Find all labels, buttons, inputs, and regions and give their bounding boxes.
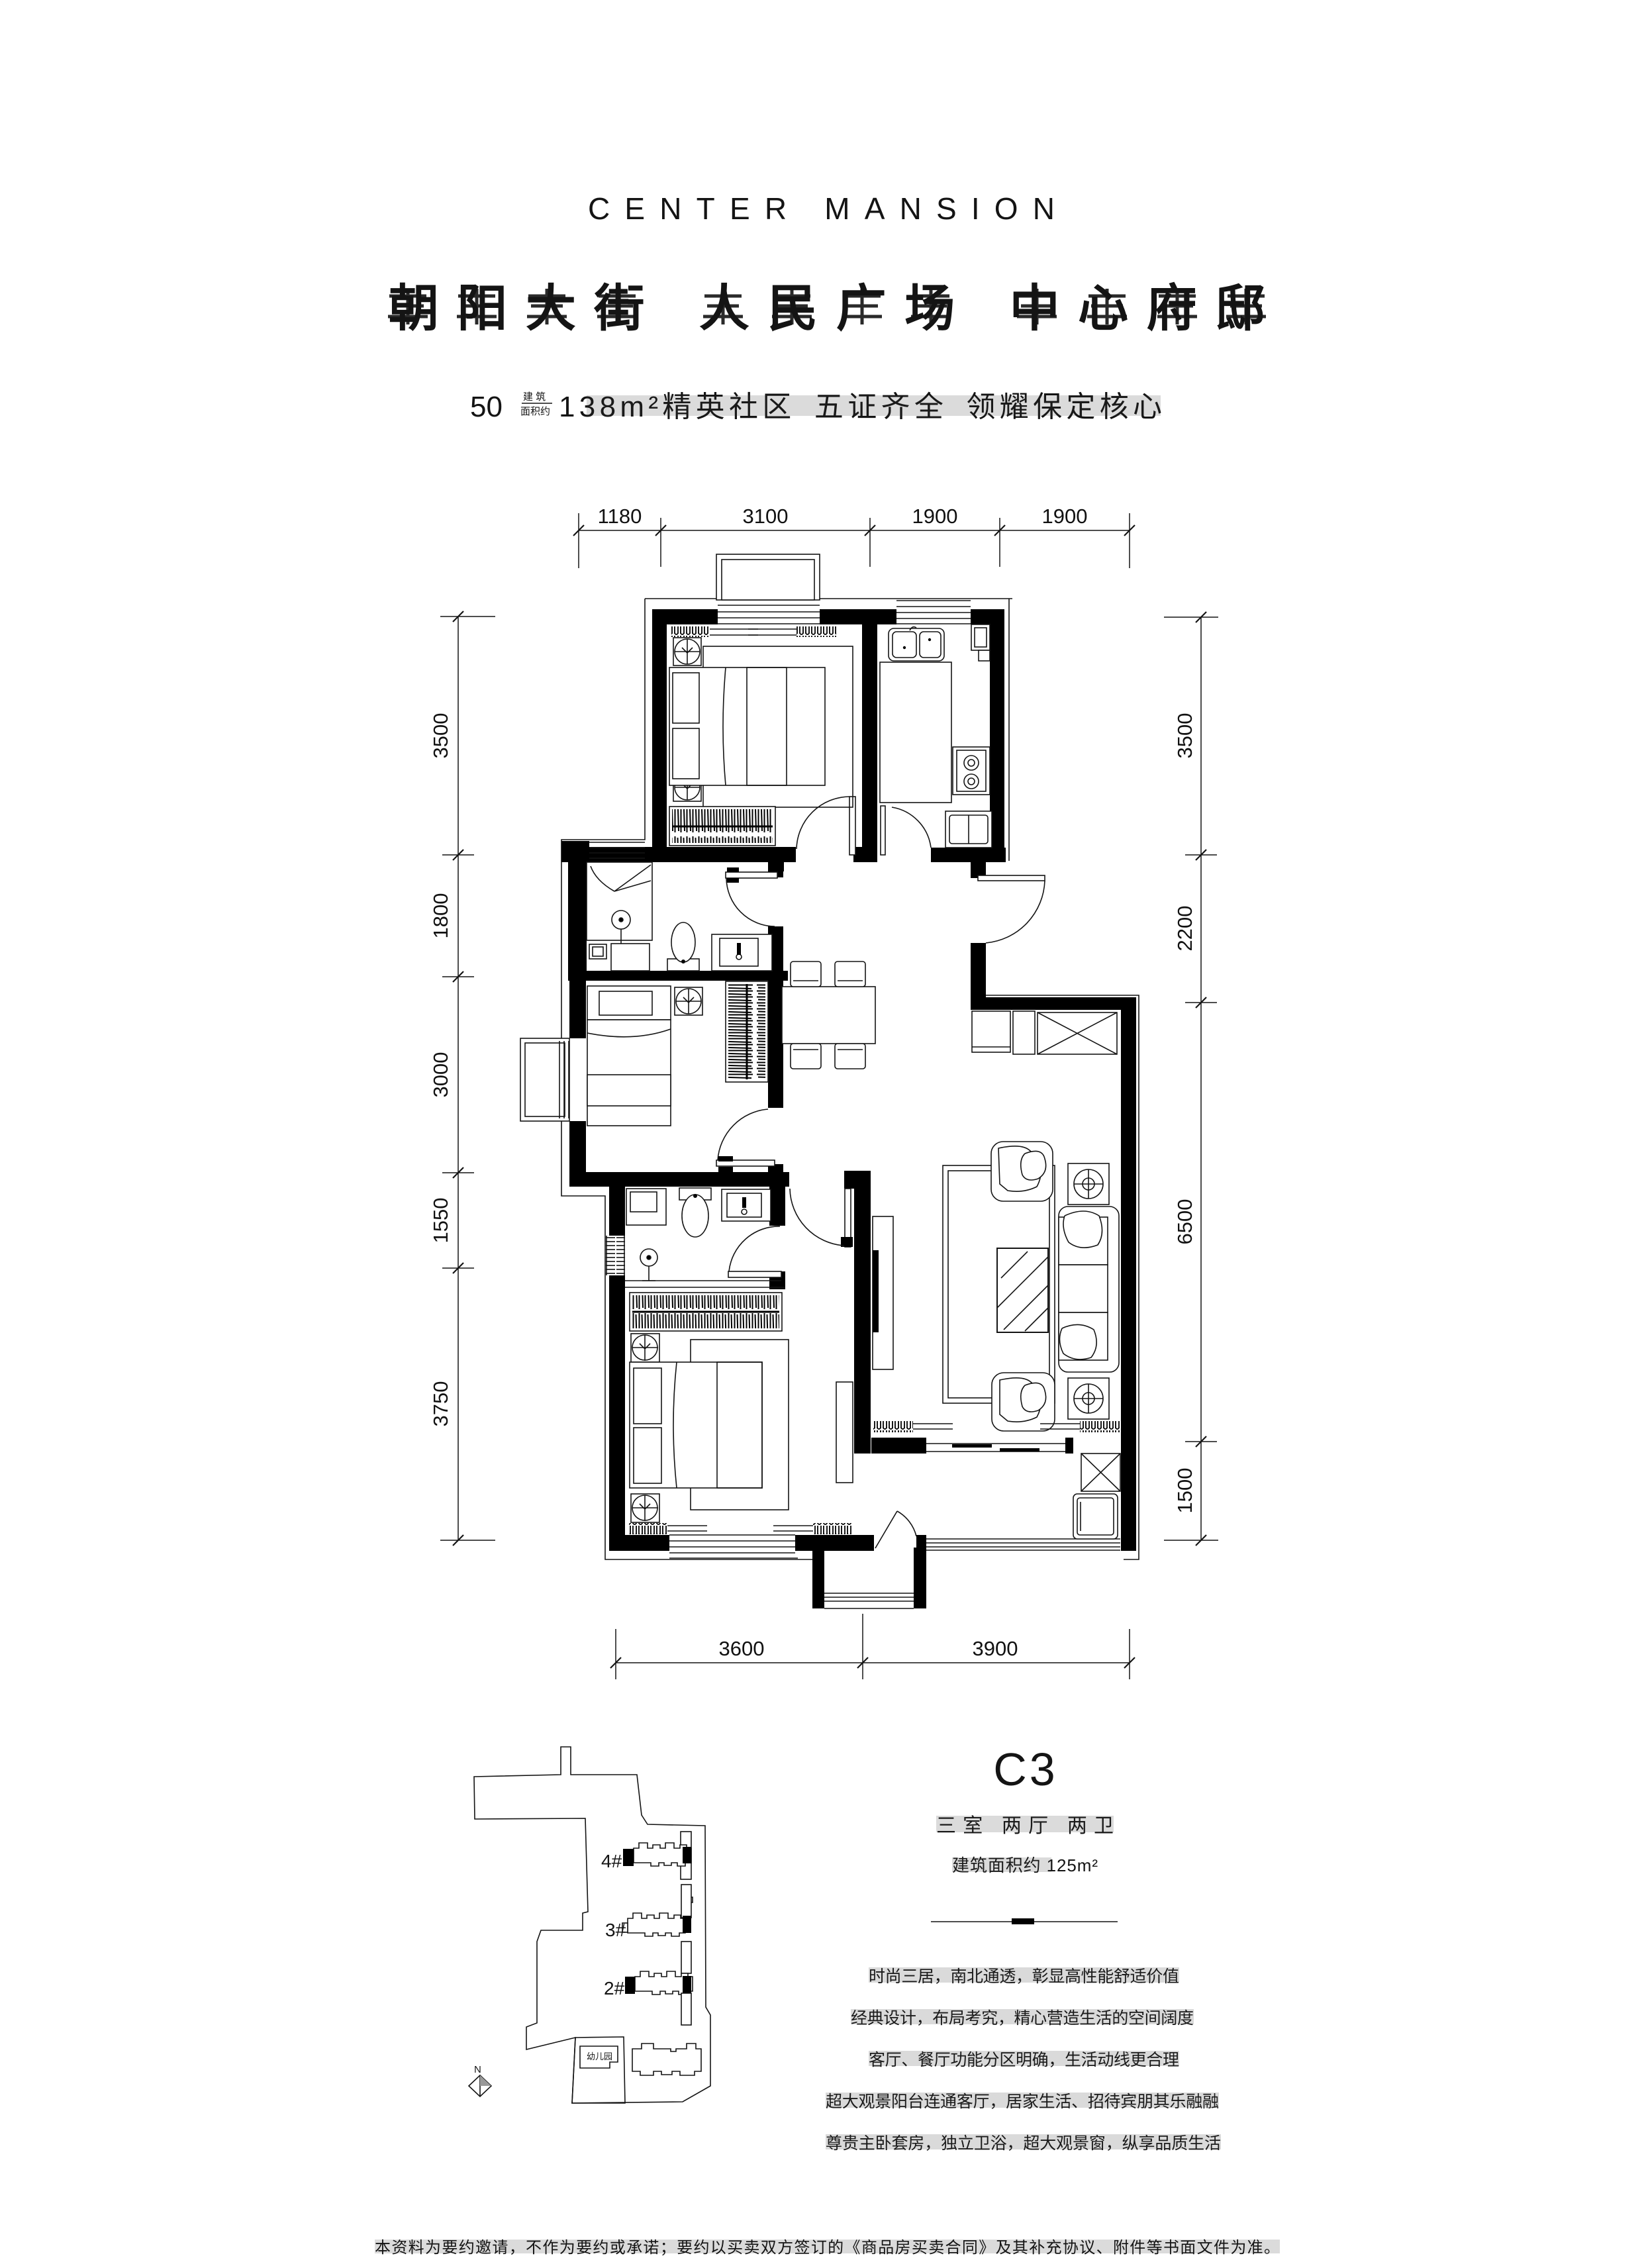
svg-text:3600: 3600: [719, 1637, 765, 1660]
svg-text:N: N: [474, 2064, 481, 2075]
svg-text:本资料为要约邀请，不作为要约或承诺；要约以买卖双方签订的《商: 本资料为要约邀请，不作为要约或承诺；要约以买卖双方签订的《商品房买卖合同》及其补…: [375, 2239, 1280, 2257]
svg-text:1900: 1900: [1042, 505, 1088, 528]
svg-text:C3: C3: [993, 1744, 1057, 1795]
svg-text:3500: 3500: [429, 713, 452, 759]
svg-text:1180: 1180: [598, 505, 642, 528]
svg-text:4#: 4#: [601, 1851, 622, 1871]
svg-text:3900: 3900: [973, 1637, 1018, 1660]
svg-text:3750: 3750: [429, 1381, 452, 1427]
svg-text:3100: 3100: [743, 505, 789, 528]
svg-text:6500: 6500: [1173, 1199, 1196, 1245]
svg-text:3#: 3#: [605, 1920, 626, 1940]
svg-text:面积约: 面积约: [520, 406, 550, 417]
svg-text:建 筑: 建 筑: [523, 391, 546, 403]
svg-text:50: 50: [470, 391, 503, 423]
svg-text:3000: 3000: [429, 1052, 452, 1098]
svg-text:1900: 1900: [912, 505, 958, 528]
svg-text:朝 阳 大 街 人 民 广 场 中 心 府 邸: 朝 阳 大 街 人 民 广 场 中 心 府 邸: [389, 281, 1265, 337]
svg-text:1500: 1500: [1173, 1468, 1196, 1514]
svg-text:1550: 1550: [429, 1198, 452, 1244]
svg-text:2#: 2#: [604, 1978, 625, 1998]
svg-text:1800: 1800: [429, 893, 452, 939]
svg-text:2200: 2200: [1173, 906, 1196, 952]
svg-text:幼儿园: 幼儿园: [587, 2051, 612, 2061]
svg-text:3500: 3500: [1173, 713, 1196, 759]
